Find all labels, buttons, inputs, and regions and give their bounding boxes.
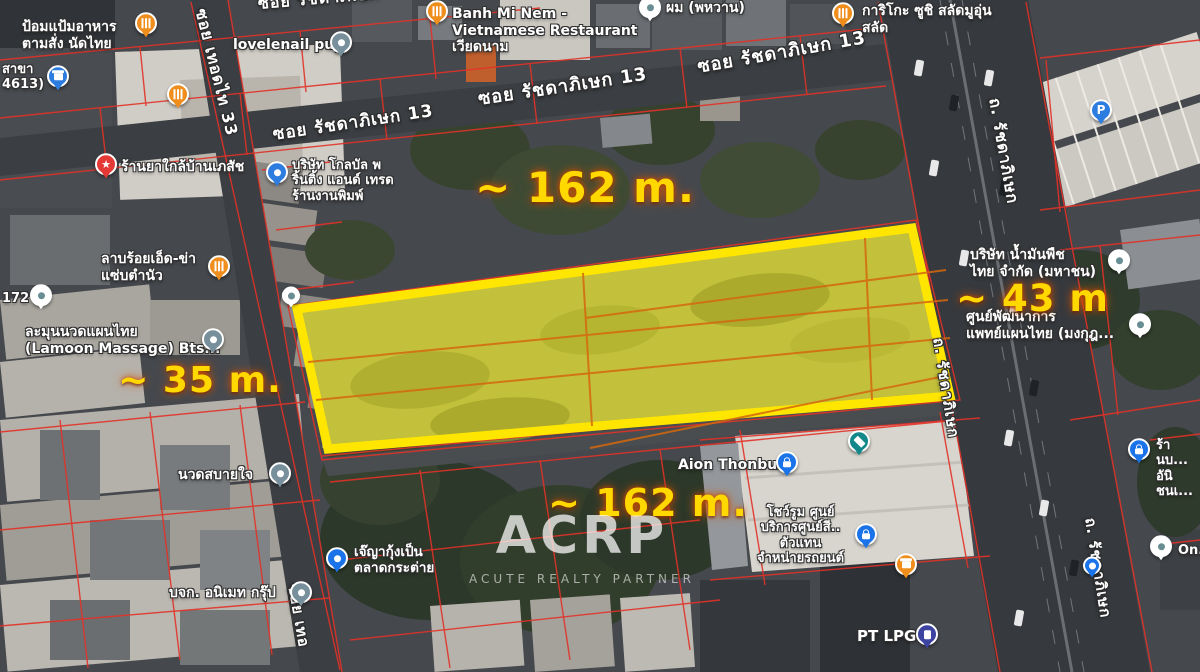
company-pin-icon[interactable] [290, 581, 312, 603]
storefront-icon [54, 73, 63, 80]
restaurant-pin-icon[interactable] [167, 83, 189, 105]
poi-label-branch-4613: สาขา 4613) [2, 62, 44, 93]
star-icon: ★ [101, 159, 111, 170]
dot-icon [277, 470, 284, 477]
utensils-icon [145, 18, 147, 28]
poi-label-pt-lpg: PT LPG [857, 628, 916, 646]
dot-icon [38, 292, 45, 299]
poi-label-banh-mi-nem: Banh Mi Nem - Vietnamese Restaurant เวีย… [452, 6, 638, 56]
poi-label-pompam-restaurant: ป้อมแป้มอาหาร ตามสั่ง นัดไทย [22, 19, 117, 52]
dot-icon [210, 336, 217, 343]
printing-pin-icon[interactable] [266, 161, 288, 183]
poi-label-global-printing: บริษัท โกลบัล พ ริ้นติ้ง แอนด์ เทรด ร้าน… [292, 158, 394, 204]
graduation-pin-icon[interactable] [848, 430, 870, 452]
lock-icon [862, 533, 870, 539]
bank-pin-icon[interactable] [1083, 557, 1101, 575]
gas-station-pin-icon[interactable] [916, 623, 938, 645]
dot-icon [647, 4, 654, 11]
dot-icon [298, 589, 305, 596]
storefront-icon [902, 561, 911, 568]
dot-icon [1089, 562, 1096, 569]
dot-icon [274, 169, 281, 176]
company-pin-icon[interactable] [1108, 249, 1130, 271]
restaurant-pin-icon[interactable] [426, 0, 448, 22]
poi-label-thai-vegetable-oil: บริษัท น้ำมันพืช ไทย จำกัด (มหาชน) [970, 247, 1096, 280]
poi-label-on-marker: On... [1178, 543, 1200, 558]
dimension-right: ~ 43 m [925, 277, 1140, 320]
poi-label-nuat-sabai-jai: นวดสบายใจ [178, 467, 253, 484]
poi-label-aion-thonburi: Aion Thonburi [678, 457, 789, 474]
generic-pin-icon[interactable] [30, 284, 52, 306]
generic-pin-icon[interactable] [282, 287, 300, 305]
massage-pin-icon[interactable] [202, 328, 224, 350]
store-pin-icon[interactable] [895, 553, 917, 575]
utensils-icon [218, 261, 220, 271]
poi-label-lab-roi-et: ลาบร้อยเอ็ด-ข่า แซ่บตำนัว [101, 251, 196, 284]
poi-label-lovelenail: lovelenail puy [233, 37, 343, 54]
lock-pin-icon[interactable] [855, 523, 877, 545]
lock-icon [1135, 448, 1143, 454]
watermark-logo: ACRP [482, 510, 682, 562]
poi-label-pharmacy: ร้านยาใกล้บ้านเภสัช [121, 159, 244, 176]
poi-label-animate-group: บจก. อนิเมท กรุ๊ป [169, 585, 276, 602]
poi-label-je-ya-kung: เจ๊ญากุ้งเป็น ตลาดกระต่าย [354, 545, 434, 577]
store-pin-icon[interactable] [47, 65, 69, 87]
nail-shop-pin-icon[interactable] [330, 31, 352, 53]
dimension-top: ~ 162 m. [455, 163, 715, 212]
utensils-icon [842, 8, 844, 18]
utensils-icon [436, 6, 438, 16]
shopping-cart-pin-icon[interactable] [326, 547, 348, 569]
dimension-left: ~ 35 m. [92, 360, 308, 401]
lock-icon [783, 461, 791, 467]
parking-pin-icon[interactable]: P [1090, 99, 1112, 121]
dot-icon [288, 292, 295, 299]
restaurant-pin-icon[interactable] [135, 12, 157, 34]
poi-label-hair-salon: ผม (พหวาน) [666, 0, 745, 17]
massage-pin-icon[interactable] [269, 462, 291, 484]
dot-icon [338, 39, 345, 46]
map-stage[interactable]: ซอย รัชดาภิเษก ซอย รัชดาภิเษก 13 ซอย รัช… [0, 0, 1200, 672]
utensils-icon [177, 89, 179, 99]
restaurant-pin-icon[interactable] [832, 2, 854, 24]
poi-label-kariko-sushi: การิโกะ ซูชิ สลัดมูอุ่น สลัด [862, 3, 992, 36]
cart-icon [334, 555, 341, 562]
poi-label-shop-right-edge: ร้านบ... อันิชนเ... [1156, 438, 1200, 499]
lock-pin-icon[interactable] [776, 451, 798, 473]
generic-pin-icon[interactable] [1150, 535, 1172, 557]
fuel-pump-icon [924, 630, 931, 639]
dot-icon [1137, 321, 1144, 328]
watermark-tagline: ACUTE REALTY PARTNER [462, 572, 702, 586]
parking-icon: P [1097, 104, 1106, 116]
dot-icon [1158, 543, 1165, 550]
dot-icon [1116, 257, 1123, 264]
restaurant-pin-icon[interactable] [208, 255, 230, 277]
poi-label-172: 172 [2, 291, 29, 306]
poi-label-lamoon-massage: ละมุนนวดแผนไทย (Lamoon Massage) Bts... [25, 324, 220, 357]
lock-pin-icon[interactable] [1128, 438, 1150, 460]
pharmacy-pin-icon[interactable]: ★ [95, 153, 117, 175]
graduation-cap-icon [853, 435, 865, 447]
